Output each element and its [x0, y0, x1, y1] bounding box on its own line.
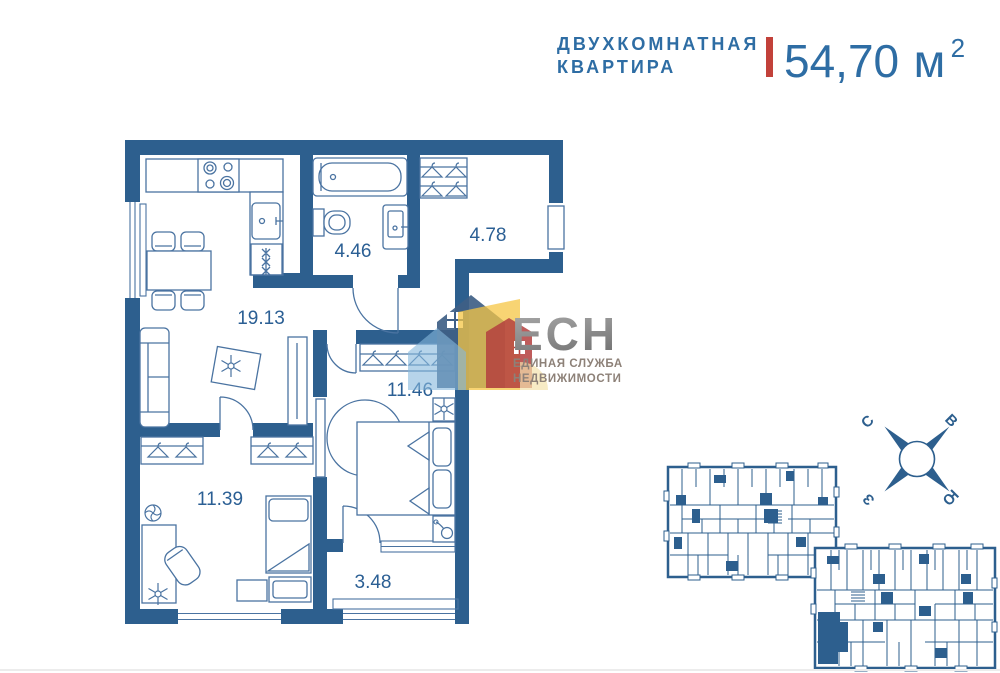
- bedroom2-closet-right: [251, 437, 313, 464]
- total-area: 54,70 м 2: [784, 33, 965, 87]
- sofa: [140, 328, 169, 427]
- bathroom-fixtures: [313, 158, 408, 249]
- window-left: [125, 202, 146, 298]
- hanger-icon: [446, 163, 466, 177]
- floor-plan-page: ДВУХКОМНАТНАЯ КВАРТИРА 54,70 м 2: [0, 0, 1000, 673]
- door-bedroom2: [220, 397, 253, 430]
- bedroom2-fixtures: [141, 437, 313, 605]
- window-bedroom2: [178, 609, 281, 624]
- toilet-icon: [313, 209, 350, 236]
- label-living-kitchen: 19.13: [237, 308, 285, 329]
- window-balcony: [333, 599, 458, 624]
- hallway-closet: [420, 158, 467, 198]
- header: ДВУХКОМНАТНАЯ КВАРТИРА 54,70 м 2: [557, 33, 965, 87]
- door-bathroom: [353, 288, 398, 333]
- plant-table: [211, 346, 261, 389]
- compass-rose-icon: С В З Ю: [858, 411, 962, 509]
- door-bedroom: [327, 344, 356, 373]
- total-area-sup: 2: [951, 33, 965, 63]
- double-bed: [357, 422, 455, 515]
- washbasin-icon: [383, 205, 408, 249]
- logo: ЕСН ЕДИНАЯ СЛУЖБА НЕДВИЖИМОСТИ: [408, 295, 623, 390]
- compass-east: В: [941, 411, 961, 431]
- hanger-icon: [286, 443, 306, 457]
- hanger-icon: [148, 443, 168, 457]
- chair: [152, 232, 175, 251]
- hanger-icon: [446, 182, 466, 196]
- compass-west: З: [859, 490, 878, 509]
- logo-tagline-line2: НЕДВИЖИМОСТИ: [513, 373, 621, 385]
- logo-abbr: ЕСН: [512, 308, 618, 360]
- bathtub-icon: [313, 158, 407, 196]
- nightstand-top: [433, 398, 455, 421]
- hanger-icon: [422, 163, 442, 177]
- hanger-icon: [386, 351, 406, 365]
- logo-tagline-line1: ЕДИНАЯ СЛУЖБА: [513, 358, 623, 370]
- label-bedroom2: 11.39: [197, 489, 243, 510]
- total-area-value: 54,70: [784, 35, 899, 87]
- hanger-icon: [363, 351, 383, 365]
- hanger-icon: [422, 182, 442, 196]
- chair: [152, 291, 175, 310]
- single-bed: [266, 496, 311, 573]
- hanger-icon: [258, 443, 278, 457]
- scene: ДВУХКОМНАТНАЯ КВАРТИРА 54,70 м 2: [0, 0, 1000, 673]
- chair: [181, 291, 204, 310]
- tv-cabinet: [288, 337, 307, 425]
- entrance-door: [548, 203, 564, 252]
- total-area-unit: м: [914, 35, 946, 87]
- apartment-type-line2: КВАРТИРА: [557, 57, 676, 77]
- compass-north: С: [858, 412, 878, 432]
- compass-south: Ю: [939, 486, 962, 509]
- dining-table: [147, 232, 211, 310]
- hanger-icon: [176, 443, 196, 457]
- apartment-type-line1: ДВУХКОМНАТНАЯ: [557, 34, 759, 54]
- bedroom2-closet-left: [141, 437, 203, 464]
- storage-box: [237, 580, 267, 601]
- nightstand-bottom: [433, 516, 455, 542]
- label-balcony: 3.48: [355, 572, 392, 593]
- building-plan-2: [811, 544, 997, 671]
- red-divider-bar: [766, 37, 773, 77]
- fan-icon: [145, 505, 161, 521]
- table-top: [147, 251, 211, 290]
- label-hallway: 4.78: [470, 225, 507, 246]
- stove-icon: [198, 159, 239, 192]
- window-balcony-inner: [381, 541, 455, 552]
- kitchen-fixtures: [140, 159, 307, 427]
- label-bathroom: 4.46: [335, 241, 372, 262]
- building-plan-1: [664, 463, 839, 580]
- bed-nightstand: [269, 577, 311, 602]
- image-edge: [0, 669, 1000, 671]
- chair: [181, 232, 204, 251]
